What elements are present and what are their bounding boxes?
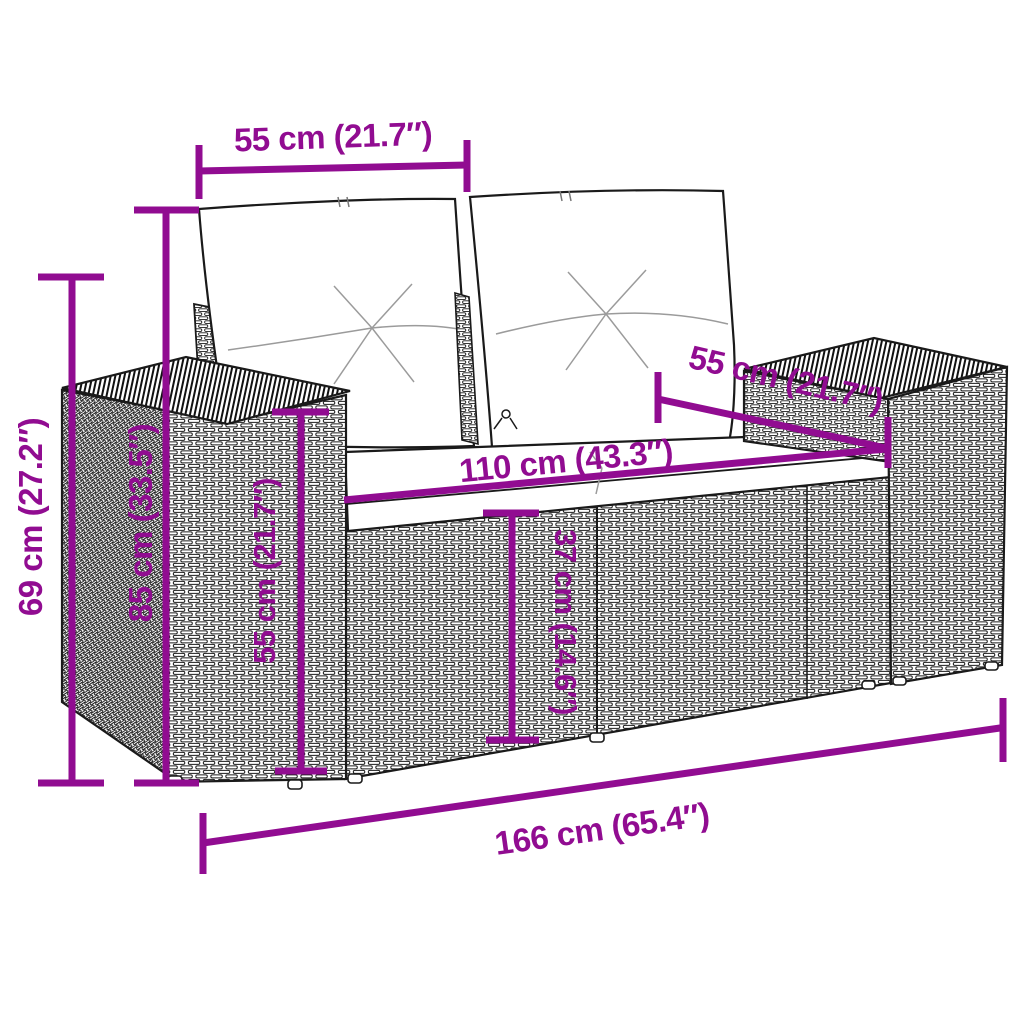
dim-back-cushion-width: 55 cm (21.7″) — [199, 115, 467, 199]
dim-label: 55 cm (21.7″) — [233, 115, 432, 159]
sofa-illustration — [62, 190, 1007, 789]
left-armrest — [62, 357, 350, 782]
dim-label: 166 cm (65.4″) — [492, 795, 711, 862]
dim-label: 69 cm (27.2″) — [12, 418, 49, 616]
dim-line — [199, 165, 467, 171]
dim-label: 37 cm (14.6″) — [548, 529, 583, 715]
dim-label: 55 cm (21.7″) — [247, 478, 282, 664]
dim-label: 85 cm (33.5″) — [122, 424, 159, 622]
right-armrest-right-face — [888, 367, 1007, 684]
sofa-dimension-drawing: 55 cm (21.7″) 69 cm (27.2″) 85 cm (33.5″… — [0, 0, 1024, 1024]
dimension-diagram: 55 cm (21.7″) 69 cm (27.2″) 85 cm (33.5″… — [0, 0, 1024, 1024]
